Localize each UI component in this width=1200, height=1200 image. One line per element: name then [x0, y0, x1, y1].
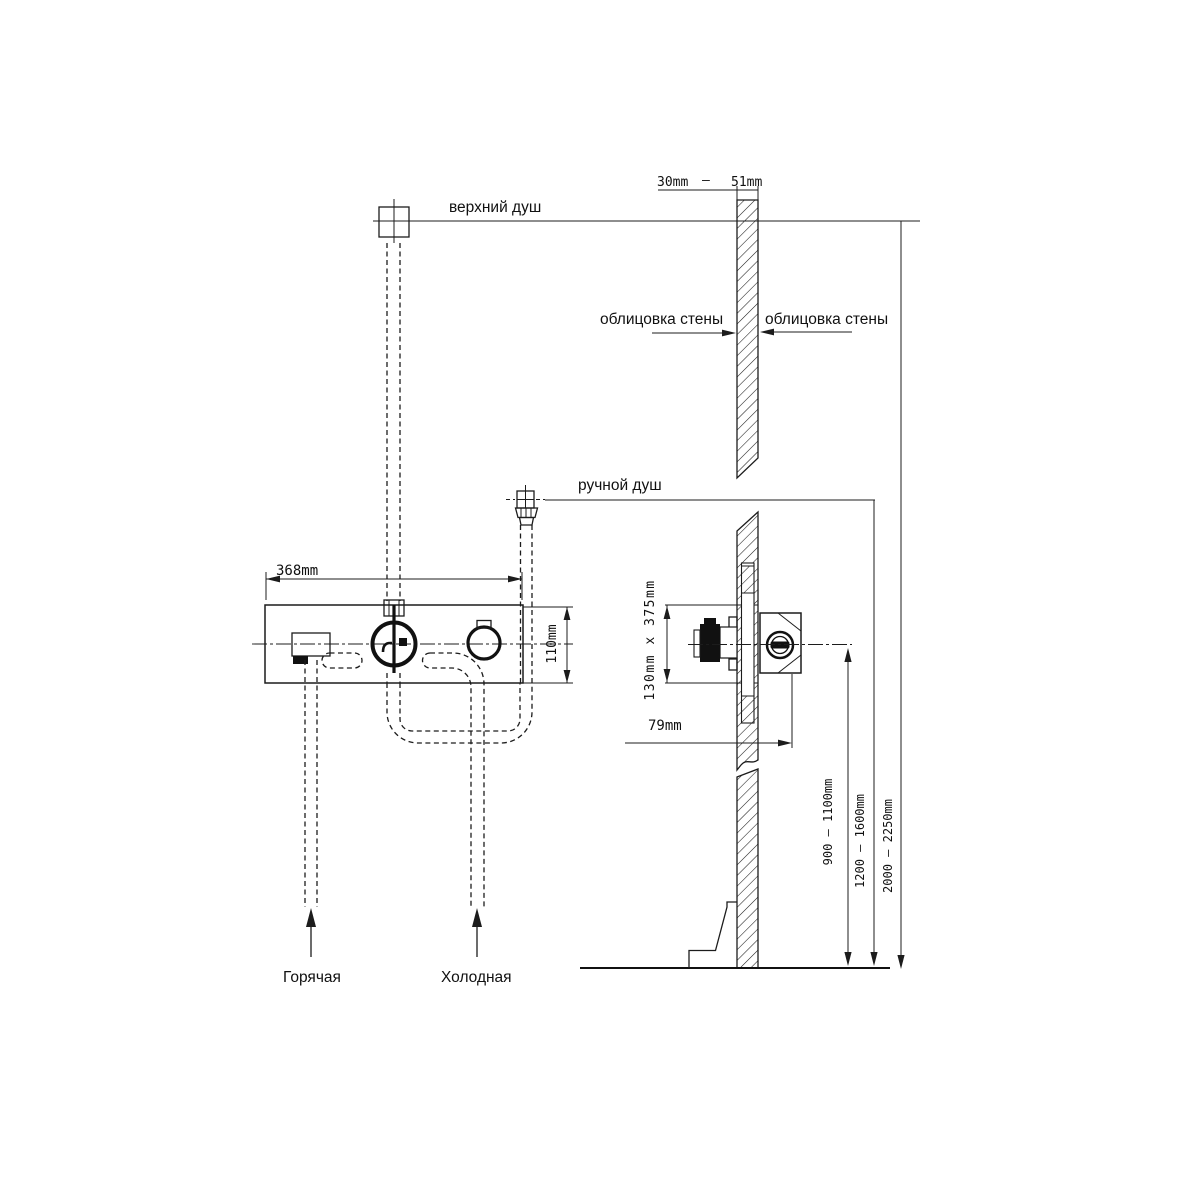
cartridge	[700, 624, 720, 662]
top-shower-label: верхний душ	[449, 199, 541, 216]
hand-shower-group: ручной душ	[506, 477, 875, 683]
spout	[292, 633, 330, 664]
rough-in-dimension: 130mm x 375mm	[643, 579, 670, 700]
floor	[580, 902, 890, 968]
thermostat-dial	[373, 600, 416, 673]
height-dimensions: 900 — 1100mm 1200 — 1600mm 2000 — 2250mm	[821, 221, 905, 969]
shower-installation-drawing: 30mm — 51mm верхний душ облицовка стены …	[0, 0, 1200, 1200]
dim-panel-width: 368mm	[276, 563, 318, 579]
dim-wall-sep: —	[702, 173, 710, 188]
wall-cladding-right-label: облицовка стены	[765, 311, 888, 328]
hot-arrow-icon	[306, 908, 316, 927]
riser-pipe	[387, 243, 400, 601]
leader-arrow-right-icon	[760, 329, 774, 336]
dim-hand-shower-height: 1200 — 1600mm	[853, 794, 867, 888]
hand-shower-label: ручной душ	[578, 477, 662, 494]
panel-front-view: 368mm 110mm	[252, 563, 573, 683]
tub-edge-profile	[689, 902, 737, 968]
cold-arrow-icon	[472, 908, 482, 927]
installation-diagram: 30mm — 51mm верхний душ облицовка стены …	[0, 0, 1200, 1200]
wall-cladding-left-label: облицовка стены	[600, 311, 723, 328]
supply-labels: Горячая Холодная	[283, 908, 512, 986]
leader-arrow-left-icon	[722, 330, 736, 337]
mode-icon	[399, 638, 407, 646]
dim-wall-max: 51mm	[731, 175, 762, 190]
piping	[305, 653, 532, 907]
hot-label: Горячая	[283, 969, 341, 986]
top-shower-group: верхний душ	[373, 199, 920, 243]
diverter-knob	[468, 621, 500, 660]
cold-label: Холодная	[441, 969, 512, 986]
dim-valve-height: 900 — 1100mm	[821, 779, 835, 866]
dim-wall-min: 30mm	[657, 175, 688, 190]
wall-thickness-dimension: 30mm — 51mm	[657, 173, 762, 200]
dim-panel-height: 110mm	[545, 624, 560, 663]
dim-depth: 79mm	[648, 718, 682, 734]
dim-top-shower-height: 2000 — 2250mm	[881, 799, 895, 893]
dim-rough-in: 130mm x 375mm	[643, 579, 658, 700]
